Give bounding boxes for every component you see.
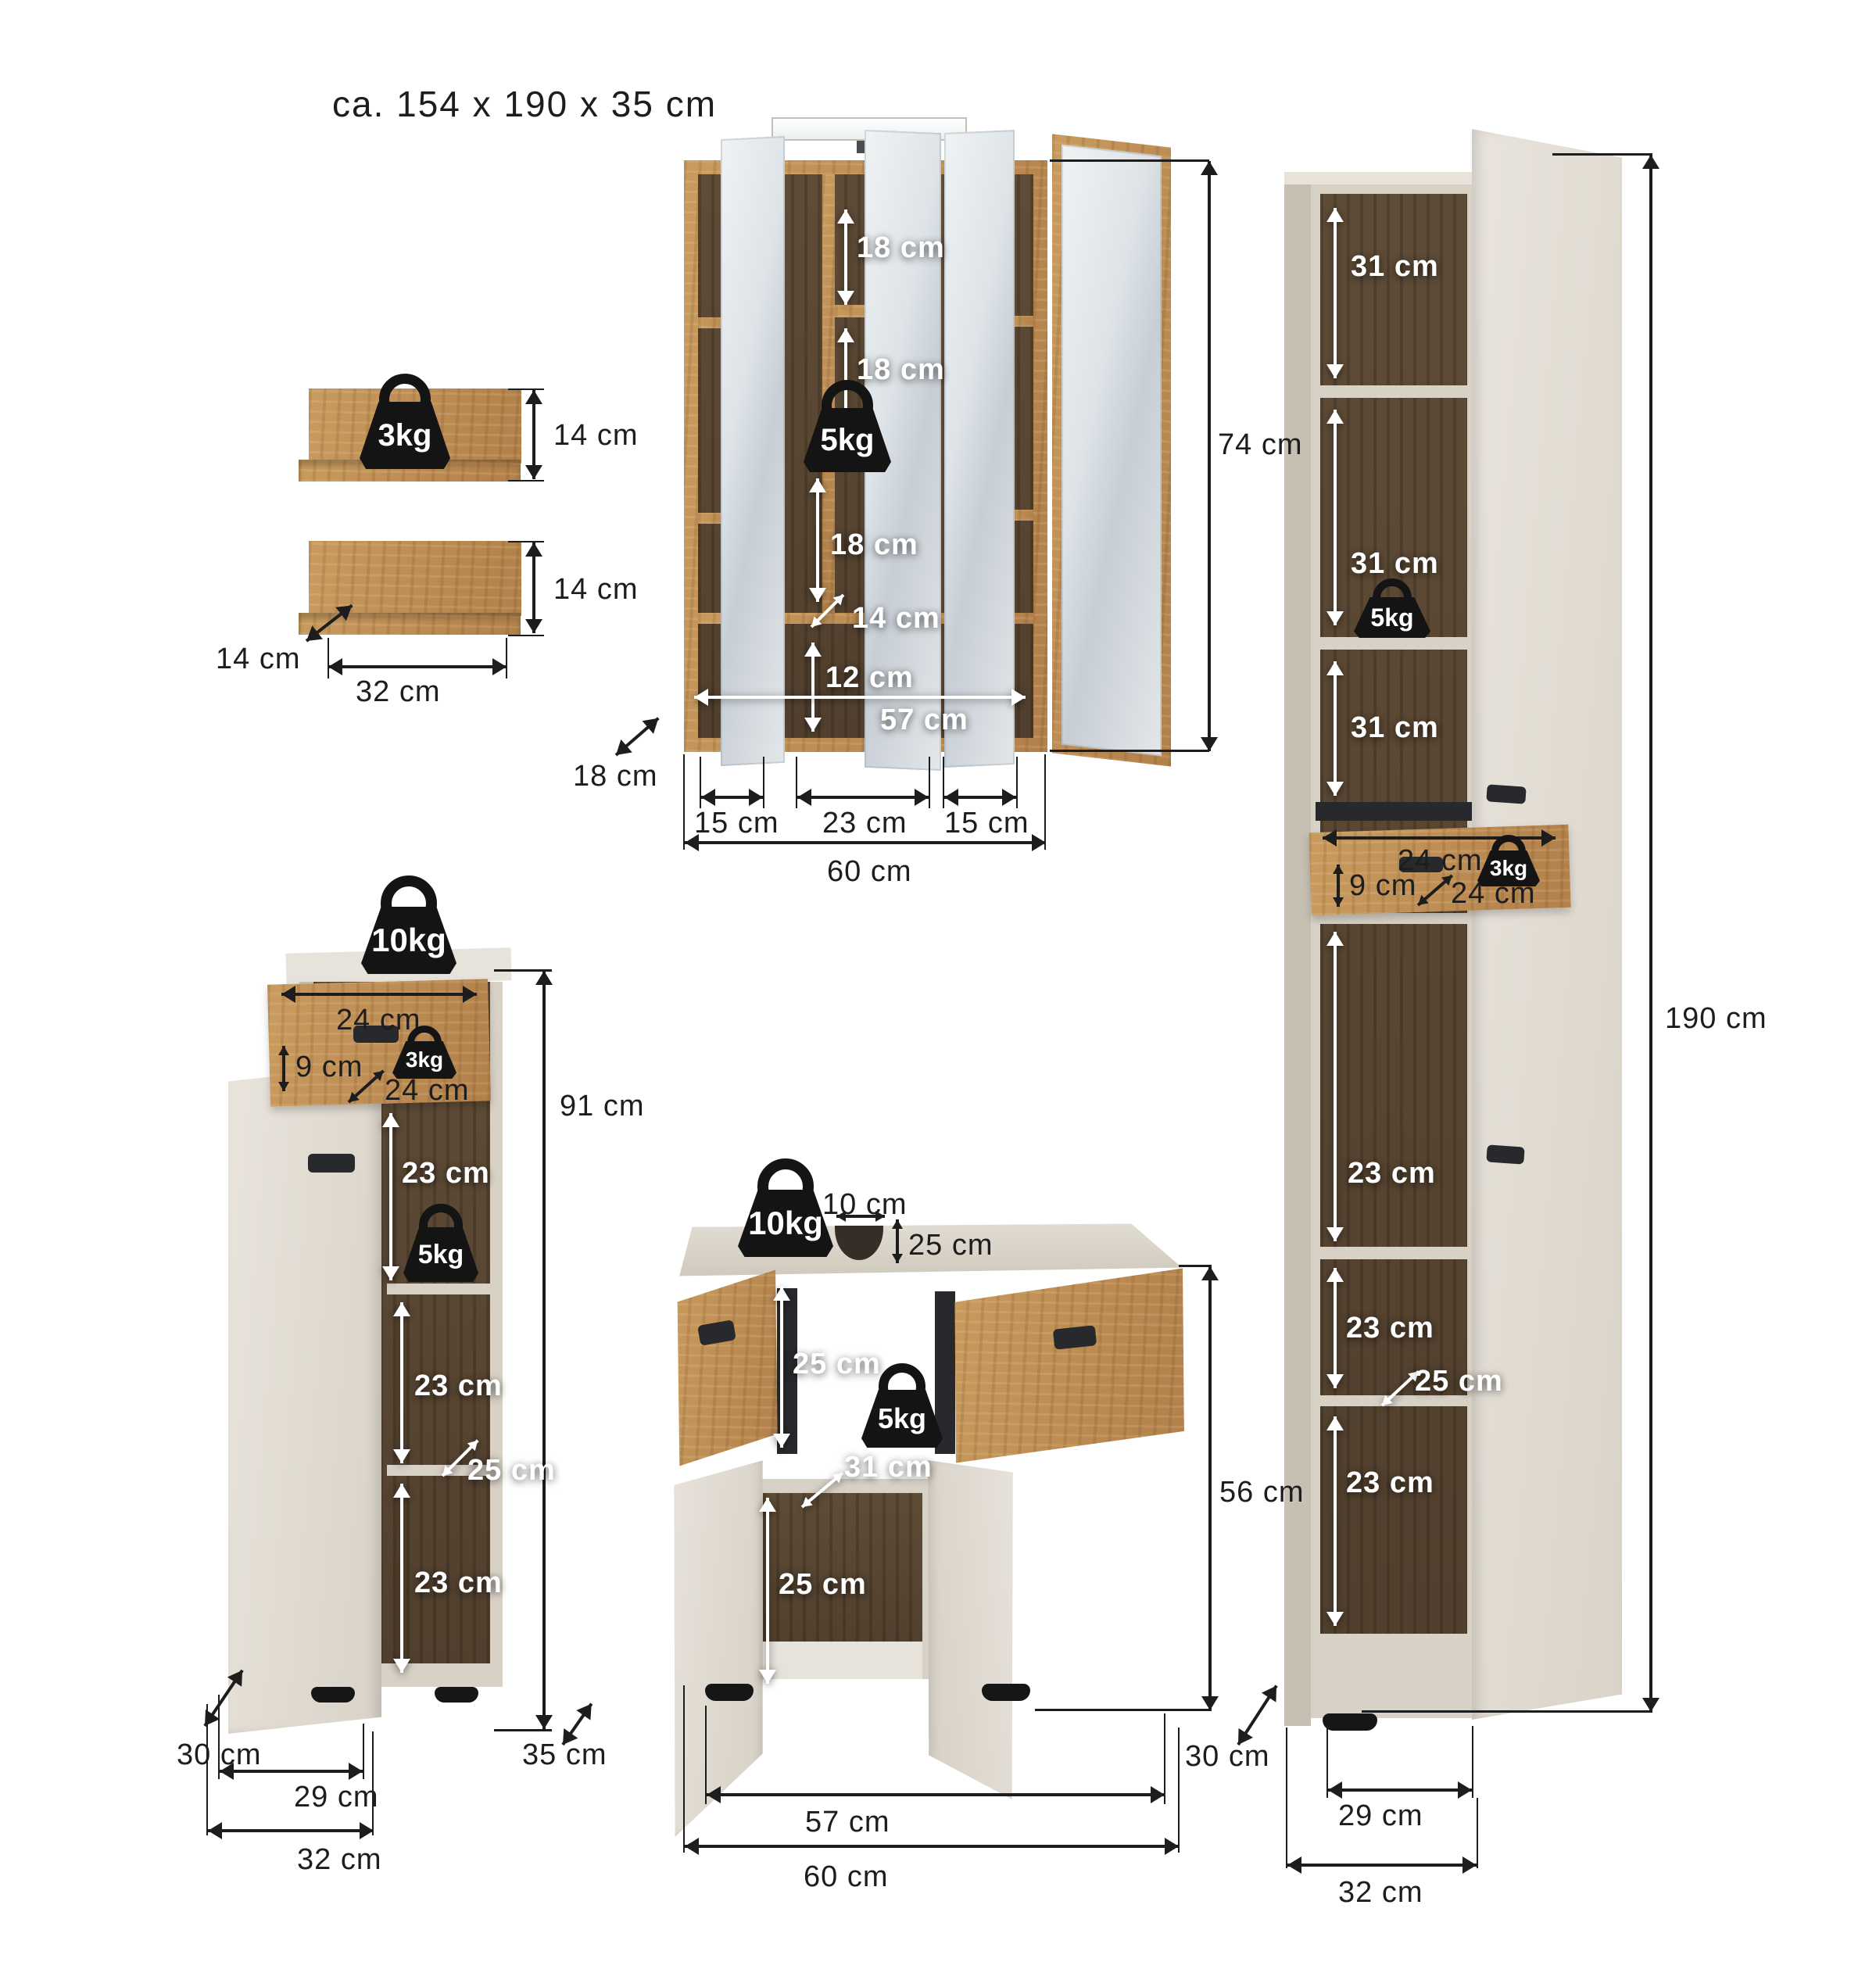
compartment-arrow xyxy=(400,1484,403,1673)
dimension-tick xyxy=(363,1724,364,1779)
cutout-inset-label: 25 cm xyxy=(908,1229,993,1262)
base-drawer-depth-label: 24 cm xyxy=(385,1074,469,1108)
base-shelf-depth-label: 25 cm xyxy=(467,1454,556,1488)
dimension-tick xyxy=(763,757,764,808)
weight-body-icon: 5kg xyxy=(1354,597,1430,638)
weight-icon-5kg: 5kg xyxy=(403,1204,478,1282)
tall-compartment-label: 23 cm xyxy=(1348,1157,1436,1191)
base-cabinet-door xyxy=(228,1065,381,1734)
weight-icon-3kg: 3kg xyxy=(392,1026,456,1079)
dimension-tick xyxy=(1050,159,1209,162)
door-handle xyxy=(308,1154,355,1173)
weight-icon-5kg: 5kg xyxy=(861,1363,943,1448)
compartment-arrow xyxy=(766,1498,769,1684)
dimension-arrow xyxy=(1328,1788,1472,1792)
tall-height-label: 190 cm xyxy=(1665,1002,1767,1036)
tall-compartment-label: 23 cm xyxy=(1346,1466,1434,1500)
weight-body-icon: 3kg xyxy=(360,402,450,469)
tall-shelf xyxy=(1320,1247,1467,1259)
dimension-tick xyxy=(1286,1728,1287,1868)
dimension-tick xyxy=(1035,1709,1212,1711)
tall-compartment-label: 31 cm xyxy=(1351,711,1439,745)
compartment-arrow xyxy=(844,209,847,305)
base-shelf-arrow xyxy=(811,643,814,732)
base-shelf-load-label: 5kg xyxy=(418,1240,464,1270)
mirror-depth-inner-label: 14 cm xyxy=(852,602,940,636)
tall-width-label: 32 cm xyxy=(1338,1876,1423,1910)
mirror-door-left xyxy=(721,136,785,766)
vanity-drawer-front-right xyxy=(954,1266,1185,1465)
base-width-label: 32 cm xyxy=(297,1843,381,1877)
weight-body-icon: 10kg xyxy=(361,907,456,974)
mirror-compartment-label: 18 cm xyxy=(857,231,945,265)
depth-arrow xyxy=(615,717,660,756)
dimension-arrow xyxy=(707,1793,1165,1796)
weight-icon-5kg: 5kg xyxy=(804,380,891,472)
mirror-door-center-right xyxy=(944,130,1015,768)
tall-shelf-load-label: 5kg xyxy=(1370,603,1413,632)
weight-icon-5kg: 5kg xyxy=(1354,578,1430,638)
base-shelf xyxy=(387,1284,490,1294)
mirror-column-label: 15 cm xyxy=(944,807,1029,840)
tall-compartment-label: 31 cm xyxy=(1351,250,1439,284)
vanity-stand-width-label: 57 cm xyxy=(805,1806,890,1839)
base-height-label: 91 cm xyxy=(560,1090,644,1123)
vanity-height-label: 56 cm xyxy=(1219,1476,1304,1509)
weight-body-icon: 3kg xyxy=(392,1041,456,1079)
shelf-bottom-height-label: 14 cm xyxy=(553,573,638,607)
compartment-arrow xyxy=(1334,661,1337,796)
cabinet-foot xyxy=(1323,1713,1377,1731)
door-handle xyxy=(1486,1144,1524,1164)
dimension-tick xyxy=(1050,750,1209,752)
vanity-shelf-load-label: 5kg xyxy=(878,1402,926,1435)
dimension-tick xyxy=(683,1685,685,1853)
weight-body-icon: 3kg xyxy=(1477,850,1540,886)
mirror-height-label: 74 cm xyxy=(1218,428,1302,462)
dimension-tick xyxy=(494,1729,552,1731)
shelf-width-label: 32 cm xyxy=(356,675,440,709)
dimension-arrow xyxy=(1208,161,1211,751)
shelf-load-label: 3kg xyxy=(378,418,432,453)
tall-drawer-height-label: 9 cm xyxy=(1349,869,1416,903)
weight-body-icon: 5kg xyxy=(403,1227,478,1282)
shelf-depth-label: 14 cm xyxy=(216,643,300,676)
cabinet-foot xyxy=(435,1687,478,1703)
wall-shelf-bottom-ledge xyxy=(299,613,521,635)
tall-stand-width-label: 29 cm xyxy=(1338,1799,1423,1833)
base-compartment-label: 23 cm xyxy=(414,1370,503,1403)
compartment-arrow xyxy=(400,1302,403,1463)
dimension-arrow xyxy=(532,390,535,479)
base-stand-width-label: 29 cm xyxy=(294,1781,378,1814)
weight-icon-3kg: 3kg xyxy=(360,374,450,469)
weight-body-icon: 10kg xyxy=(738,1190,833,1257)
tall-compartment-label: 23 cm xyxy=(1346,1312,1434,1345)
vanity-top-load-label: 10kg xyxy=(748,1205,823,1242)
dimension-arrow xyxy=(542,971,546,1729)
dimension-arrow xyxy=(1208,1266,1212,1710)
dimension-arrow xyxy=(685,1845,1179,1848)
drawer-height-arrow xyxy=(282,1046,285,1091)
mirror-width-label: 60 cm xyxy=(827,855,911,889)
mirror-inner-width-label: 57 cm xyxy=(880,704,968,737)
weight-icon-10kg: 10kg xyxy=(361,875,456,974)
cabinet-foot xyxy=(705,1684,754,1701)
tall-depth-label: 30 cm xyxy=(1185,1740,1269,1774)
compartment-arrow xyxy=(1334,208,1337,378)
base-top-load-label: 10kg xyxy=(371,922,446,959)
weight-icon-10kg: 10kg xyxy=(738,1158,833,1257)
cabinet-foot xyxy=(982,1684,1030,1701)
dimension-tick xyxy=(1552,153,1652,156)
tall-shelf-depth-label: 25 cm xyxy=(1415,1365,1503,1398)
compartment-arrow xyxy=(1334,410,1337,625)
vanity-drawer-front-left xyxy=(675,1268,779,1468)
compartment-arrow xyxy=(780,1287,783,1448)
weight-icon-3kg: 3kg xyxy=(1477,835,1540,886)
drawer-width-arrow xyxy=(281,993,477,996)
vanity-width-label: 60 cm xyxy=(804,1860,888,1894)
mirror-column-label: 23 cm xyxy=(822,807,907,840)
tall-shelf xyxy=(1320,385,1467,398)
furniture-dimensions-diagram: ca. 154 x 190 x 35 cm 3kg 14 cm 14 cm 14… xyxy=(0,0,1876,1980)
mirror-column-label: 15 cm xyxy=(694,807,779,840)
vanity-door-left xyxy=(672,1459,764,1837)
base-compartment-label: 23 cm xyxy=(414,1566,503,1600)
mirror-door-right-frame xyxy=(1052,134,1171,766)
depth-arrow xyxy=(1237,1685,1277,1745)
dimension-tick xyxy=(508,635,544,636)
dimension-tick xyxy=(1477,1798,1478,1868)
base-compartment-label: 23 cm xyxy=(402,1157,490,1191)
compartment-arrow xyxy=(1334,1416,1337,1626)
compartment-arrow xyxy=(1334,1268,1337,1388)
drawer-height-arrow xyxy=(1337,865,1340,907)
tall-fixed-shelf xyxy=(1316,802,1472,821)
base-depth-label: 30 cm xyxy=(177,1738,261,1772)
dimension-tick xyxy=(929,757,930,808)
weight-body-icon: 5kg xyxy=(804,408,891,472)
door-handle xyxy=(1486,784,1526,804)
dimension-arrow xyxy=(797,796,929,799)
dimension-tick xyxy=(1178,1728,1180,1853)
dimension-tick xyxy=(508,480,544,482)
tall-shelf xyxy=(1320,637,1467,650)
base-drawer-height-label: 9 cm xyxy=(295,1051,363,1084)
cutout-width-label: 10 cm xyxy=(822,1188,907,1222)
dimension-arrow xyxy=(685,841,1046,844)
cutout-inset-arrow xyxy=(896,1219,899,1263)
mirror-compartment-label: 18 cm xyxy=(830,528,918,562)
dimension-arrow xyxy=(1649,155,1652,1712)
set-dimensions-title: ca. 154 x 190 x 35 cm xyxy=(332,83,717,125)
dimension-arrow xyxy=(532,542,535,633)
tall-bottom-board xyxy=(1320,1634,1467,1667)
cabinet-foot xyxy=(311,1687,355,1703)
shelf-top-height-label: 14 cm xyxy=(553,419,638,453)
compartment-arrow xyxy=(1334,932,1337,1241)
vanity-depth-label: 35 cm xyxy=(522,1738,607,1772)
vanity-inner-width-label: 31 cm xyxy=(844,1451,933,1484)
tall-compartment-label: 31 cm xyxy=(1351,547,1439,581)
dimension-arrow xyxy=(208,1829,374,1832)
dimension-tick xyxy=(1362,1710,1652,1713)
inner-width-arrow xyxy=(694,696,1026,699)
mirror-depth-label: 18 cm xyxy=(573,760,657,793)
mirror-load-label: 5kg xyxy=(821,423,875,458)
compartment-arrow xyxy=(816,478,819,602)
dimension-tick xyxy=(1472,1726,1473,1798)
tall-drawer-load-label: 3kg xyxy=(1490,856,1527,881)
mirror-base-shelf-label: 12 cm xyxy=(825,661,914,695)
dimension-arrow xyxy=(328,665,507,668)
compartment-arrow xyxy=(389,1113,392,1280)
vanity-door-right xyxy=(927,1459,1015,1799)
dimension-arrow xyxy=(701,796,763,799)
weight-body-icon: 5kg xyxy=(861,1390,943,1448)
vanity-lower-compartment-label: 25 cm xyxy=(779,1568,867,1602)
dimension-arrow xyxy=(944,796,1016,799)
base-drawer-load-label: 3kg xyxy=(406,1047,443,1072)
tall-shelf xyxy=(1320,913,1467,924)
dimension-arrow xyxy=(1287,1864,1477,1867)
dimension-tick xyxy=(1016,757,1018,808)
tall-cabinet-door xyxy=(1472,129,1622,1720)
mirror-door-right-glass xyxy=(1062,145,1162,757)
